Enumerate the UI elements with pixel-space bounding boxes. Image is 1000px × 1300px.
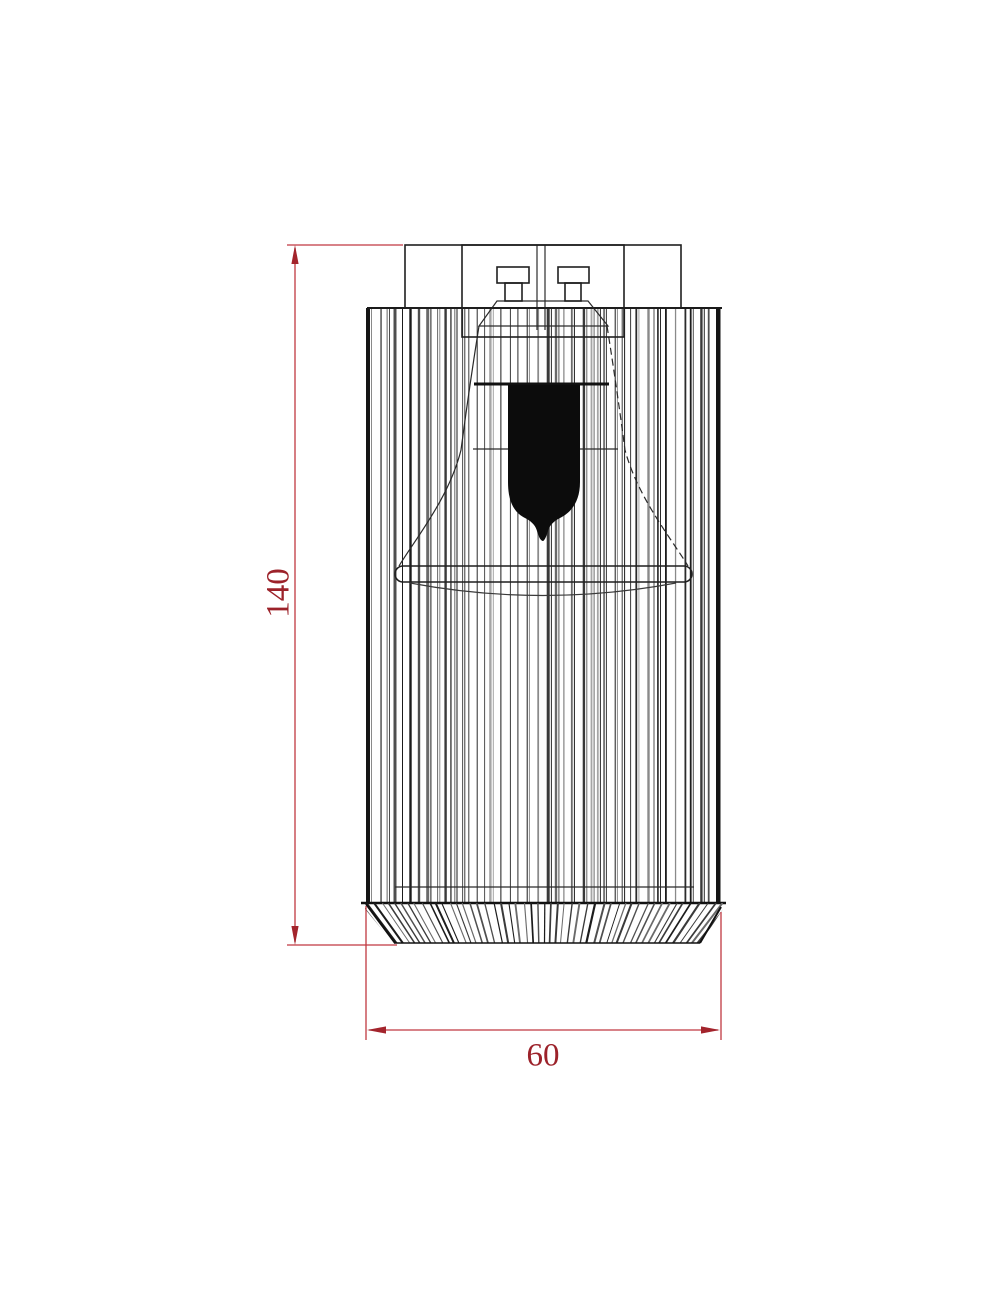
skirt-hatch-line [509,903,515,943]
rib-line [402,308,403,903]
skirt-hatch-line [501,903,508,943]
skirt-left-edge [366,904,395,943]
width-dimension-label: 60 [527,1040,560,1073]
rib-line [624,308,625,903]
height-arrow-down [291,926,298,945]
rib-line [704,308,705,903]
skirt-hatch-line [531,903,533,943]
rib-line [454,308,455,903]
rib-line [489,308,491,903]
rib-line [457,308,458,903]
rib-line [630,308,631,903]
height-dimension-label: 140 [263,568,296,618]
rib-line [591,308,593,903]
bulb-holder-trapezoid [479,301,608,326]
rib-line [437,308,438,903]
rib-line [500,308,501,903]
rib-line [693,308,694,903]
mounting-block-inner [462,245,624,337]
skirt-hatch-line [525,903,528,943]
bottom-skirt [352,887,729,943]
rib-line [493,308,494,903]
skirt-hatch-line [586,903,595,943]
rib-line [418,308,420,903]
skirt-hatch-line [515,903,520,943]
rib-line [444,308,446,903]
terminal-screw-right-stem [565,283,581,301]
rib-line [654,308,655,903]
rib-line [430,308,431,903]
skirt-hatch-line [623,903,639,943]
cylinder-right-edge [716,308,721,903]
skirt-hatching [352,903,729,943]
rib-line [439,308,440,903]
skirt-hatch-line [550,903,551,943]
skirt-hatch-line [401,903,425,943]
rib-line [657,308,659,903]
terminal-screw-left-stem [505,283,522,301]
rib-line [389,308,390,903]
rib-line [635,308,637,903]
rib-line [597,308,599,903]
lamp-technical-drawing [0,0,1000,1300]
rib-line [600,308,601,903]
height-arrow-up [291,245,298,264]
rib-line [622,308,623,903]
skirt-hatch-line [538,903,539,943]
rib-line [615,308,616,903]
rib-line [586,308,587,903]
rib-line [690,308,692,903]
rib-line [603,308,604,903]
skirt-right-edge [700,907,721,943]
rib-line [647,308,649,903]
rib-line [409,308,411,903]
rib-line [394,308,397,903]
rib-line [380,308,381,903]
rib-line [675,308,676,903]
drawing-canvas: 140 60 [0,0,1000,1300]
skirt-hatch-line [573,903,579,943]
rib-line [685,308,687,903]
skirt-hatch-line [555,903,558,943]
terminal-screw-right-head [558,267,589,283]
width-arrow-left [367,1026,386,1033]
bulb-reflector-black [508,385,580,541]
rib-line [583,308,585,903]
width-arrow-right [701,1026,720,1033]
rib-line [594,308,595,903]
skirt-hatch-line [382,903,409,943]
rib-line [371,308,372,903]
cylinder-left-edge [366,308,370,903]
terminal-screw-left-head [497,267,529,283]
rib-line [477,308,478,903]
rib-line [464,308,465,903]
mounting-block-outer [405,245,681,308]
rib-line [660,308,661,903]
rib-line [484,308,485,903]
rib-line [665,308,667,903]
rib-line [708,308,710,903]
rib-line [450,308,452,903]
skirt-hatch-line [594,903,605,943]
skirt-hatch-line [567,903,572,943]
rib-line [606,308,607,903]
rib-line [638,308,639,903]
rib-line [462,308,463,903]
skirt-hatch-line [561,903,565,943]
rib-line [426,308,429,903]
rib-line [700,308,702,903]
rib-line [387,308,388,903]
skirt-hatch-line [470,903,482,943]
skirt-hatch-line [600,903,612,943]
